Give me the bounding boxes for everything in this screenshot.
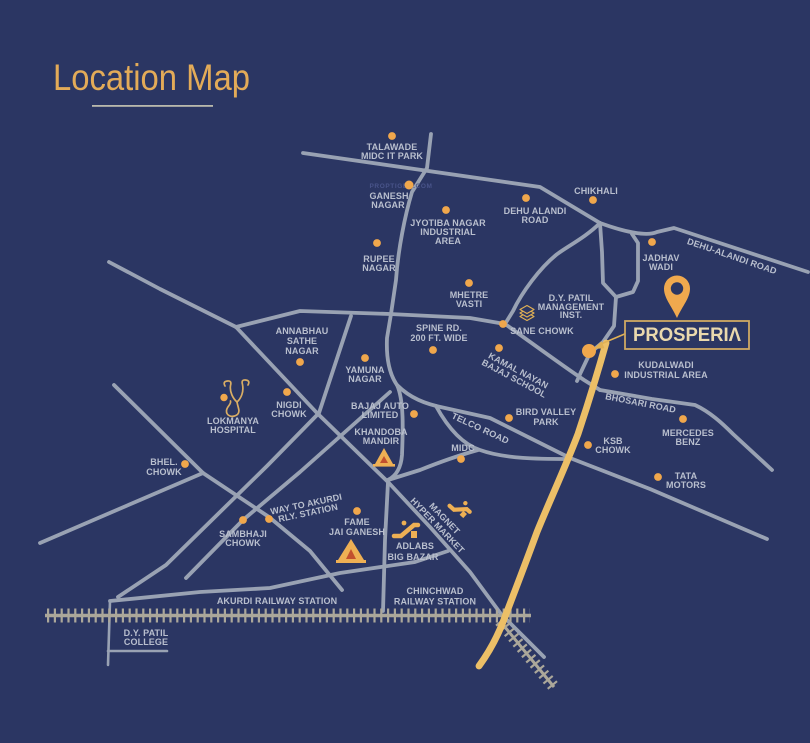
svg-text:PARK: PARK: [533, 417, 559, 427]
svg-text:FAME: FAME: [344, 517, 369, 527]
svg-text:CHOWK: CHOWK: [225, 538, 261, 548]
svg-text:AKURDI RAILWAY STATION: AKURDI RAILWAY STATION: [217, 596, 337, 606]
svg-text:WADI: WADI: [649, 262, 673, 272]
svg-text:SANE CHOWK: SANE CHOWK: [510, 326, 574, 336]
svg-text:Location Map: Location Map: [53, 57, 250, 98]
svg-text:MANDIR: MANDIR: [363, 436, 400, 446]
svg-text:SPINE RD.: SPINE RD.: [416, 323, 462, 333]
svg-text:KUDALWADI: KUDALWADI: [638, 360, 693, 370]
svg-text:MIDC IT PARK: MIDC IT PARK: [361, 151, 423, 161]
svg-text:BENZ: BENZ: [676, 437, 701, 447]
svg-text:CHINCHWAD: CHINCHWAD: [407, 586, 464, 596]
svg-text:NAGAR: NAGAR: [285, 346, 319, 356]
svg-text:200 FT. WIDE: 200 FT. WIDE: [410, 333, 467, 343]
svg-text:LIMITED: LIMITED: [362, 410, 399, 420]
svg-text:MOTORS: MOTORS: [666, 480, 706, 490]
svg-text:AREA: AREA: [435, 236, 461, 246]
svg-text:PROSPERIΛ: PROSPERIΛ: [633, 325, 741, 346]
svg-text:BIG BAZAR: BIG BAZAR: [388, 552, 439, 562]
svg-text:RAILWAY STATION: RAILWAY STATION: [394, 597, 476, 607]
svg-text:PROPTIGER.COM: PROPTIGER.COM: [369, 183, 432, 190]
svg-text:ANNABHAU: ANNABHAU: [276, 326, 329, 336]
svg-text:JAI GANESH: JAI GANESH: [329, 527, 385, 537]
svg-text:NAGAR: NAGAR: [362, 263, 396, 273]
svg-text:BIRD VALLEY: BIRD VALLEY: [516, 407, 576, 417]
svg-text:HOSPITAL: HOSPITAL: [210, 425, 256, 435]
svg-text:INST.: INST.: [560, 310, 583, 320]
svg-text:NAGAR: NAGAR: [348, 374, 382, 384]
svg-text:ADLABS: ADLABS: [396, 541, 434, 551]
svg-text:BHEL.: BHEL.: [150, 457, 178, 467]
svg-text:CHOWK: CHOWK: [595, 445, 631, 455]
svg-text:CHIKHALI: CHIKHALI: [574, 186, 618, 196]
svg-text:CHOWK: CHOWK: [146, 467, 182, 477]
svg-text:MIDC: MIDC: [451, 443, 475, 453]
svg-text:VASTI: VASTI: [456, 299, 482, 309]
svg-text:INDUSTRIAL AREA: INDUSTRIAL AREA: [624, 370, 708, 380]
svg-text:SATHE: SATHE: [287, 336, 317, 346]
svg-text:CHOWK: CHOWK: [271, 409, 307, 419]
svg-text:ROAD: ROAD: [522, 215, 549, 225]
svg-text:COLLEGE: COLLEGE: [124, 637, 168, 647]
svg-text:NAGAR: NAGAR: [371, 200, 405, 210]
